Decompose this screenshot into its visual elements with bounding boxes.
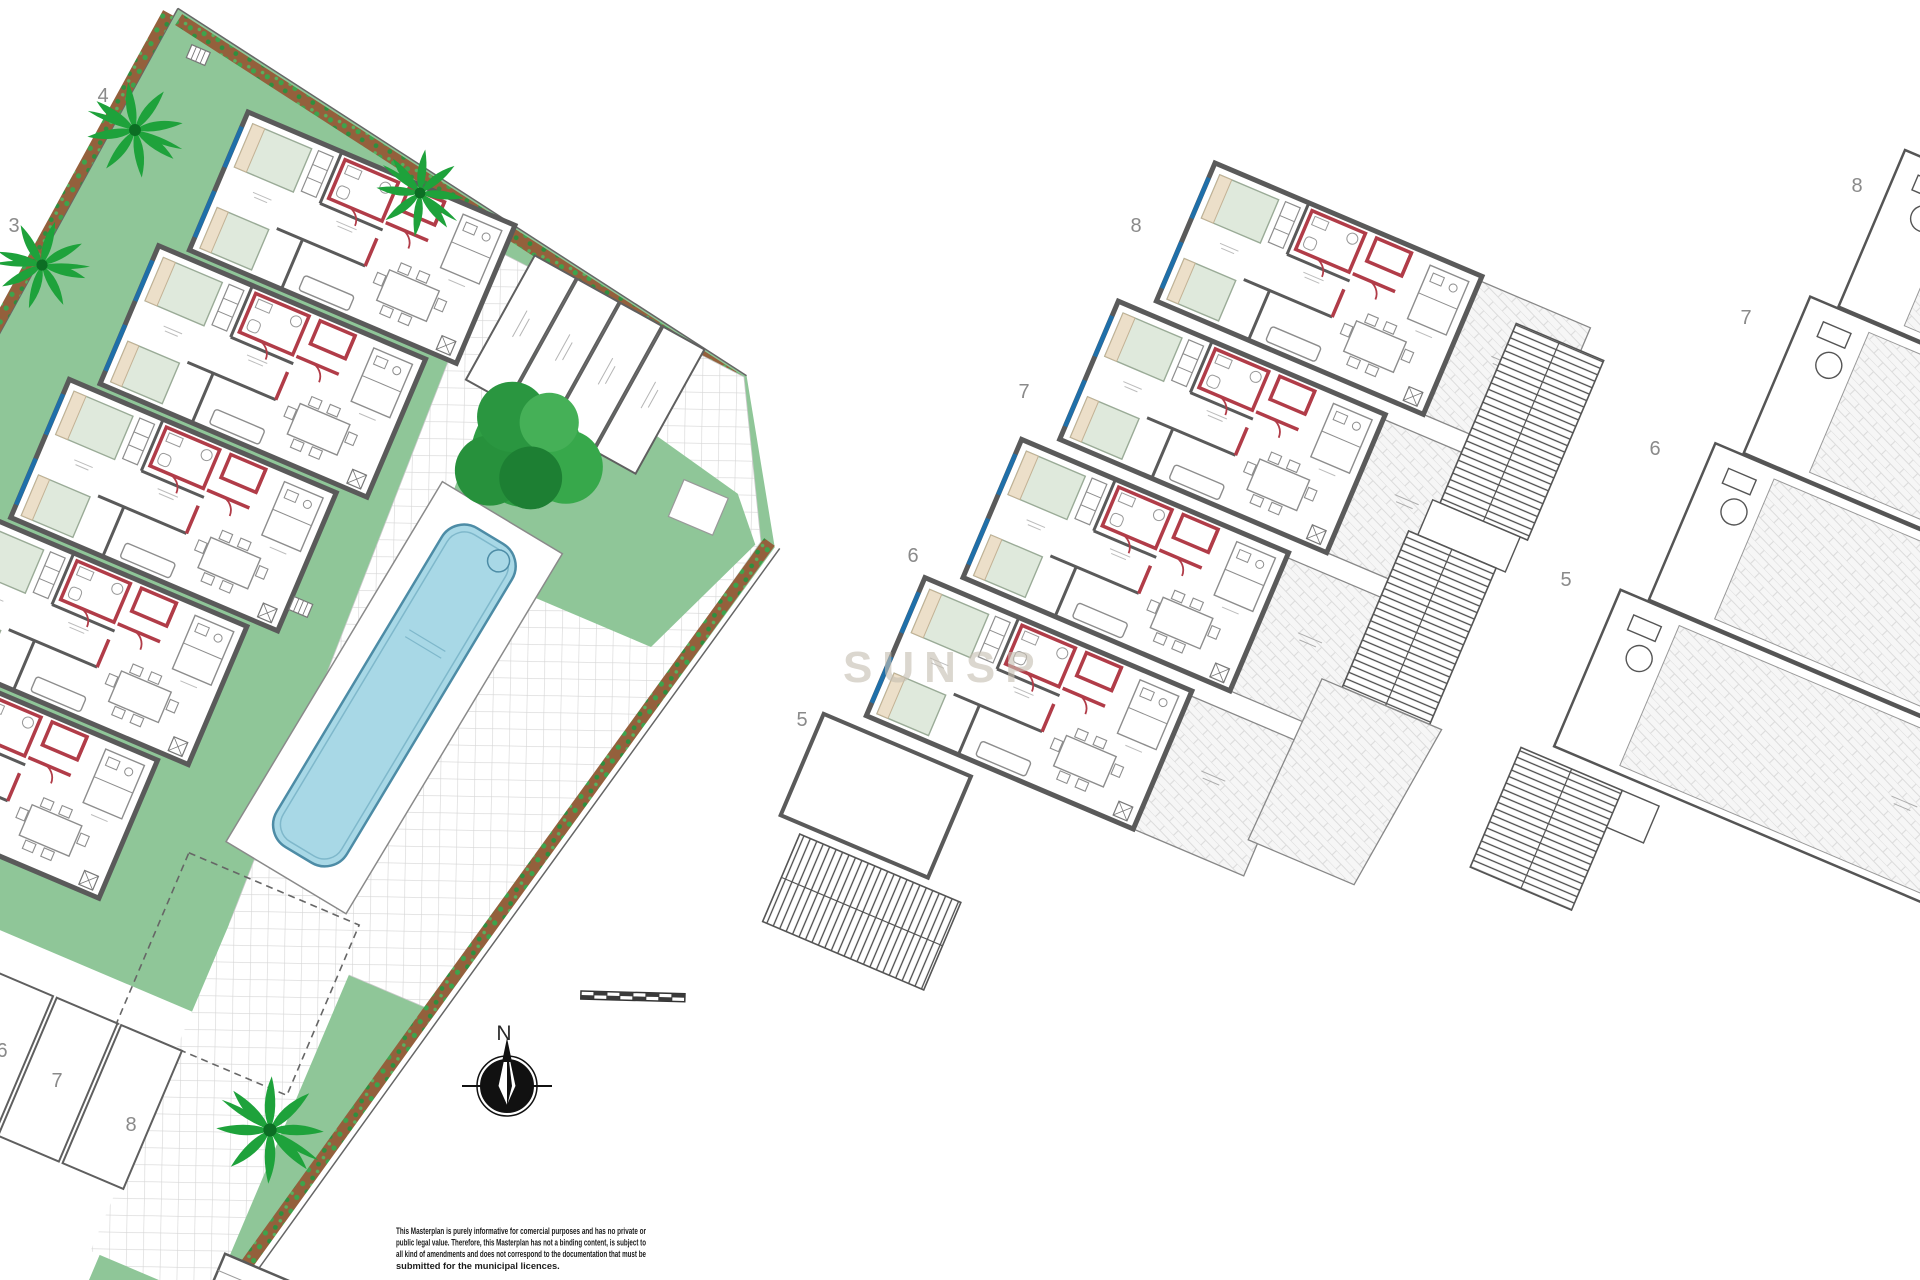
north-compass: N	[462, 1022, 552, 1116]
disclaimer-line-1: This Masterplan is purely informative fo…	[396, 1226, 646, 1236]
disclaimer-block: This Masterplan is purely informative fo…	[396, 1226, 646, 1271]
unit-number-right-6: 6	[1649, 438, 1660, 460]
parking-number-7: 7	[51, 1070, 62, 1092]
disclaimer-line-3: all kind of amendments and does not corr…	[396, 1249, 646, 1259]
unit-number-mid-5: 5	[796, 709, 807, 731]
scale-bar	[581, 991, 685, 1002]
masterplan-svg: SUNSP 4 3 6 7 8 8 7 6 5 8 7 6 5 N	[0, 0, 1920, 1280]
unit-number-mid-6: 6	[907, 545, 918, 567]
middle-building	[740, 106, 1616, 1138]
north-label: N	[496, 1022, 511, 1045]
right-building	[1470, 103, 1920, 1156]
unit-number-mid-7: 7	[1018, 381, 1029, 403]
parking-number-6: 6	[0, 1040, 8, 1062]
unit-number-left-4: 4	[97, 85, 108, 107]
unit-number-right-7: 7	[1740, 307, 1751, 329]
disclaimer-line-2: public legal value. Therefore, this Mast…	[396, 1238, 646, 1248]
unit-number-right-5: 5	[1560, 569, 1571, 591]
unit-number-right-8: 8	[1851, 175, 1862, 197]
parking-number-8: 8	[125, 1114, 136, 1136]
masterplan-canvas: SUNSP 4 3 6 7 8 8 7 6 5 8 7 6 5 N	[0, 0, 1920, 1280]
watermark-text: SUNSP	[843, 643, 1045, 692]
unit-number-mid-8: 8	[1130, 215, 1141, 237]
disclaimer-line-4: submitted for the municipal licences.	[396, 1261, 560, 1271]
unit-number-left-3: 3	[8, 215, 19, 237]
